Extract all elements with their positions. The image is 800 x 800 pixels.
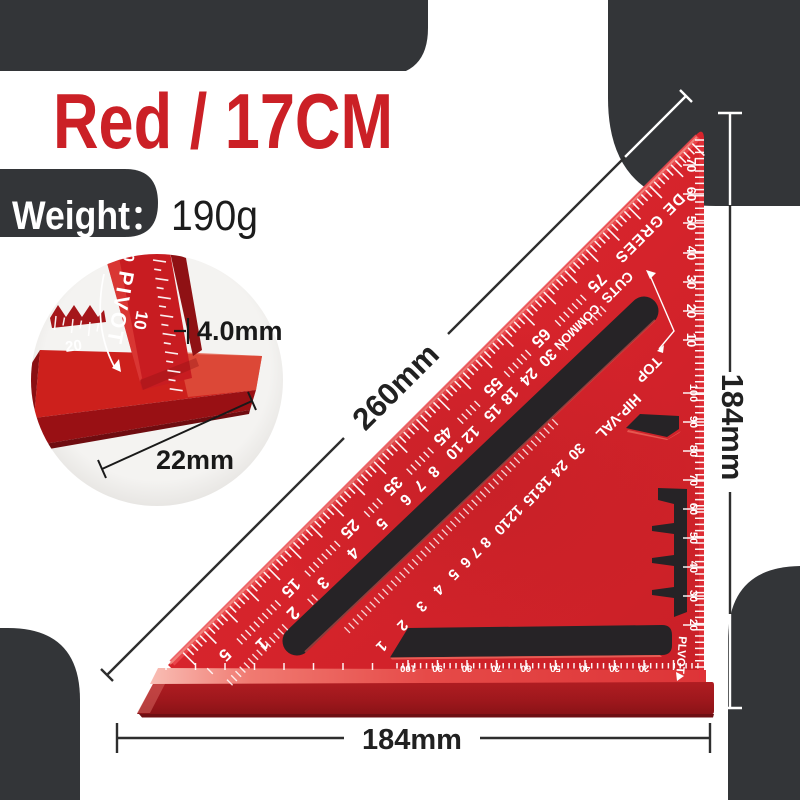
svg-text:60: 60	[687, 503, 699, 515]
svg-text:70: 70	[491, 663, 502, 674]
svg-text:70: 70	[684, 158, 699, 172]
svg-text:30: 30	[609, 663, 620, 674]
svg-text:80: 80	[462, 663, 473, 674]
svg-text:90: 90	[687, 416, 699, 428]
svg-text:10: 10	[130, 309, 152, 331]
svg-text:80: 80	[687, 445, 699, 457]
svg-text:70: 70	[687, 474, 699, 486]
svg-text:184mm: 184mm	[362, 724, 462, 756]
svg-text:60: 60	[521, 663, 532, 674]
svg-text:60: 60	[684, 187, 699, 201]
svg-text:40: 40	[684, 246, 699, 260]
svg-text:20: 20	[639, 663, 650, 674]
svg-text:：: ：	[130, 199, 164, 237]
svg-text:184mm: 184mm	[715, 374, 750, 481]
svg-text:50: 50	[684, 216, 699, 230]
svg-text:40: 40	[687, 561, 699, 573]
svg-text:40: 40	[580, 663, 591, 674]
svg-text:Weight: Weight	[12, 194, 130, 238]
svg-text:20: 20	[64, 337, 83, 356]
svg-text:30: 30	[684, 275, 699, 289]
svg-text:20: 20	[687, 619, 699, 631]
svg-text:50: 50	[687, 532, 699, 544]
svg-text:4.0mm: 4.0mm	[197, 316, 283, 346]
svg-text:190g: 190g	[171, 192, 258, 240]
svg-text:10: 10	[684, 333, 699, 347]
svg-text:20: 20	[684, 304, 699, 318]
svg-text:30: 30	[687, 590, 699, 602]
svg-text:100: 100	[687, 384, 699, 402]
svg-text:22mm: 22mm	[156, 445, 234, 475]
svg-text:90: 90	[432, 663, 443, 674]
svg-text:Red / 17CM: Red / 17CM	[53, 77, 393, 165]
svg-text:50: 50	[550, 663, 561, 674]
svg-text:100: 100	[400, 663, 416, 674]
